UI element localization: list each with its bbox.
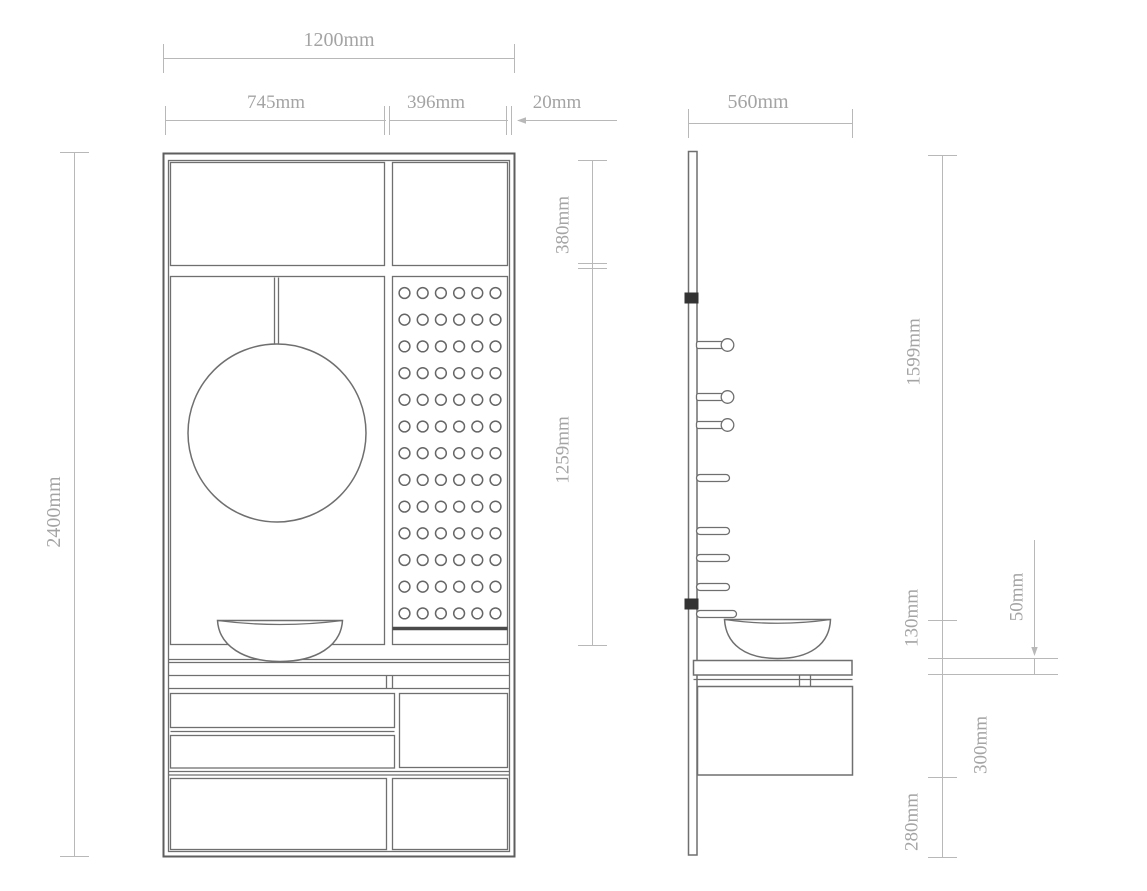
- pegboard-hole: [454, 608, 465, 619]
- dim-overall-height: 2400mm: [43, 153, 89, 857]
- flat-hook: [697, 555, 730, 562]
- pegboard-hole: [490, 288, 501, 299]
- knob-hook-bar: [697, 394, 724, 401]
- pegboard-hole: [436, 448, 447, 459]
- pegboard-hole: [490, 368, 501, 379]
- dim-side-right: 1599mm 130mm 300mm 280mm: [902, 156, 1058, 858]
- pegboard-hole: [399, 421, 410, 432]
- pegboard-hole: [417, 555, 428, 566]
- dim-overall-width: 1200mm: [164, 29, 515, 73]
- pegboard-hole: [417, 528, 428, 539]
- pegboard-hole: [454, 421, 465, 432]
- knob-hook-end: [721, 419, 734, 432]
- side-basin: [725, 620, 831, 659]
- dim-label-upper-panel-height: 1599mm: [904, 318, 925, 386]
- dim-front-right: 380mm 1259mm: [553, 161, 607, 646]
- pegboard-hole: [472, 501, 483, 512]
- front-drawers: [169, 694, 510, 850]
- dim-label-top-cabinet-height: 380mm: [553, 196, 574, 254]
- dim-side-gap: 20mm: [517, 92, 617, 124]
- dim-label-depth: 560mm: [727, 91, 789, 113]
- drawer-2-left: [171, 736, 395, 769]
- drawer-right-tall: [400, 694, 508, 768]
- pegboard-hole: [472, 475, 483, 486]
- flat-hook: [697, 584, 730, 591]
- side-view: [685, 152, 853, 856]
- side-cabinet: [698, 687, 853, 776]
- pegboard-hole: [436, 608, 447, 619]
- pegboard-hole: [399, 368, 410, 379]
- pegboard-hole: [472, 368, 483, 379]
- pegboard-hole: [472, 421, 483, 432]
- pegboard-hole: [399, 394, 410, 405]
- panel-clip-upper: [685, 293, 699, 304]
- front-basin: [218, 621, 343, 662]
- knob-hook-end: [721, 339, 734, 352]
- pegboard-hole: [454, 475, 465, 486]
- pegboard-hole: [472, 341, 483, 352]
- pegboard-hole: [417, 368, 428, 379]
- pegboard-hole: [490, 501, 501, 512]
- pegboard-hole: [417, 421, 428, 432]
- pegboard-hole: [454, 394, 465, 405]
- pegboard-hole: [454, 501, 465, 512]
- pegboard-hole: [417, 448, 428, 459]
- round-mirror: [188, 344, 366, 522]
- pegboard-hole: [490, 394, 501, 405]
- pegboard-hole: [472, 448, 483, 459]
- front-top-left-cabinet: [171, 163, 385, 266]
- pegboard-hole: [417, 501, 428, 512]
- pegboard-hole: [436, 501, 447, 512]
- pegboard-hole: [472, 394, 483, 405]
- pegboard-hole: [454, 528, 465, 539]
- pegboard-hole: [399, 555, 410, 566]
- pegboard-hole: [417, 341, 428, 352]
- pegboard-hole: [399, 448, 410, 459]
- flat-hook: [697, 611, 737, 618]
- pegboard-hole: [490, 341, 501, 352]
- pegboard-hole: [472, 555, 483, 566]
- pegboard-hole: [436, 475, 447, 486]
- dim-label-mirror-section: 745mm: [247, 92, 305, 113]
- pegboard-holes: [399, 288, 501, 619]
- pegboard-hole: [417, 581, 428, 592]
- pegboard-hole: [417, 475, 428, 486]
- pegboard-hole: [436, 528, 447, 539]
- side-countertop: [694, 661, 853, 676]
- pegboard-hole: [399, 288, 410, 299]
- pegboard-hole: [417, 394, 428, 405]
- knob-hook-bar: [697, 342, 724, 349]
- pegboard-hole: [436, 555, 447, 566]
- dim-label-overall-width: 1200mm: [303, 29, 375, 51]
- pegboard-hole: [399, 314, 410, 325]
- pegboard-hole: [454, 288, 465, 299]
- pegboard-hole: [436, 341, 447, 352]
- pegboard-hole: [399, 608, 410, 619]
- pegboard-hole: [490, 555, 501, 566]
- dim-label-side-gap: 20mm: [533, 92, 582, 113]
- knob-hook-bar: [697, 422, 724, 429]
- dim-countertop-thickness: 50mm: [1007, 540, 1038, 675]
- dim-pegboard-section-width: 396mm: [390, 92, 512, 135]
- pegboard-hole: [436, 394, 447, 405]
- dim-depth: 560mm: [689, 91, 853, 138]
- dim-label-overall-height: 2400mm: [43, 476, 65, 548]
- pegboard-hole: [436, 314, 447, 325]
- front-top-right-cabinet: [393, 163, 508, 266]
- side-hooks: [697, 339, 737, 618]
- pegboard-hole: [454, 448, 465, 459]
- vanity-technical-drawing: 1200mm 745mm 396mm 20mm 560m: [0, 0, 1147, 891]
- pegboard-hole: [490, 475, 501, 486]
- pegboard-hole: [436, 421, 447, 432]
- dim-label-open-section-height: 1259mm: [553, 416, 574, 484]
- bottom-right-compartment: [393, 779, 508, 850]
- bottom-left-compartment: [171, 779, 387, 850]
- side-basin-body: [725, 620, 831, 659]
- side-wall-panel: [689, 152, 698, 856]
- pegboard-hole: [490, 608, 501, 619]
- pegboard-hole: [454, 314, 465, 325]
- dim-arrow-left: [517, 117, 526, 123]
- pegboard-hole: [454, 368, 465, 379]
- pegboard-hole: [472, 288, 483, 299]
- pegboard-hole: [436, 581, 447, 592]
- panel-clip-lower: [685, 599, 699, 610]
- pegboard-hole: [399, 475, 410, 486]
- pegboard-hole: [436, 288, 447, 299]
- basin-body: [218, 621, 343, 662]
- dim-label-floor-clearance: 280mm: [902, 793, 923, 851]
- flat-hook: [697, 528, 730, 535]
- dim-label-countertop-thickness: 50mm: [1007, 573, 1028, 622]
- pegboard-hole: [454, 341, 465, 352]
- pegboard-hole: [399, 501, 410, 512]
- dim-mirror-section-width: 745mm: [166, 92, 390, 135]
- pegboard-hole: [417, 314, 428, 325]
- pegboard-hole: [399, 528, 410, 539]
- pegboard-hole: [472, 528, 483, 539]
- pegboard-hole: [399, 341, 410, 352]
- pegboard-hole: [490, 421, 501, 432]
- dim-arrow-down: [1031, 647, 1037, 656]
- knob-hook-end: [721, 391, 734, 404]
- pegboard-hole: [472, 581, 483, 592]
- front-view: [164, 154, 515, 857]
- pegboard-hole: [417, 608, 428, 619]
- pegboard-hole: [454, 581, 465, 592]
- pegboard-hole: [417, 288, 428, 299]
- pegboard-hole: [454, 555, 465, 566]
- flat-hook: [697, 475, 730, 482]
- dim-label-cabinet-height: 300mm: [971, 716, 992, 774]
- pegboard-hole: [436, 368, 447, 379]
- front-counter: [169, 660, 510, 689]
- pegboard-hole: [490, 314, 501, 325]
- pegboard-hole: [490, 528, 501, 539]
- pegboard-hole: [490, 448, 501, 459]
- drawer-1-left: [171, 694, 395, 728]
- pegboard-hole: [472, 608, 483, 619]
- pegboard-hole: [490, 581, 501, 592]
- mirror-group: [188, 278, 366, 523]
- dim-label-pegboard-section: 396mm: [407, 92, 465, 113]
- pegboard-hole: [472, 314, 483, 325]
- pegboard-hole: [399, 581, 410, 592]
- dim-label-basin-height: 130mm: [902, 589, 923, 647]
